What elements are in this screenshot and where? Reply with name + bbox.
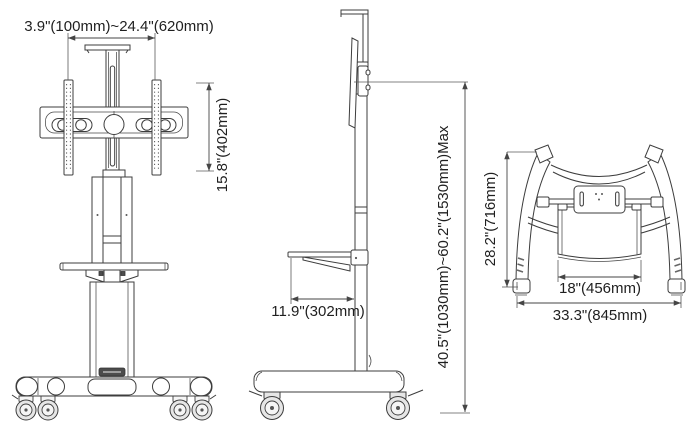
shelf-depth-label: 11.9"(302mm) bbox=[271, 303, 364, 320]
mount-crossbar bbox=[40, 107, 188, 138]
shelf-width-label: 18"(456mm) bbox=[559, 280, 641, 297]
caster bbox=[192, 395, 216, 420]
overall-height-dimension: 40.5"(1030mm)~60.2"(1530mm)Max bbox=[354, 82, 470, 413]
caster bbox=[249, 391, 284, 420]
diagram-canvas: 3.9"(100mm)~24.4"(620mm) 15.8"(402mm) bbox=[0, 0, 700, 424]
caster bbox=[387, 390, 424, 420]
base-width-dimension: 33.3"(845mm) bbox=[517, 296, 681, 324]
shelf-depth-dimension: 11.9"(302mm) bbox=[271, 258, 364, 320]
base-width-label: 33.3"(845mm) bbox=[553, 307, 648, 324]
side-pole bbox=[355, 94, 371, 373]
caster bbox=[12, 395, 36, 420]
rear-mount-plate bbox=[574, 186, 625, 213]
rear-right-leg bbox=[645, 145, 685, 295]
shelf-width-dimension: 18"(456mm) bbox=[558, 260, 641, 297]
caster bbox=[170, 396, 190, 420]
front-width-label: 3.9"(100mm)~24.4"(620mm) bbox=[24, 18, 213, 35]
caster bbox=[38, 396, 58, 420]
side-view: 11.9"(302mm) 40.5"(1030mm)~60.2"(1530mm)… bbox=[249, 10, 470, 420]
overall-height-label: 40.5"(1030mm)~60.2"(1530mm)Max bbox=[435, 125, 452, 368]
lower-column bbox=[90, 282, 134, 377]
front-casters bbox=[12, 395, 216, 420]
rear-left-leg bbox=[513, 145, 553, 295]
front-view: 3.9"(100mm)~24.4"(620mm) 15.8"(402mm) bbox=[12, 18, 231, 420]
rear-depth-label: 28.2"(716mm) bbox=[482, 172, 499, 267]
front-bracket-height-label: 15.8"(402mm) bbox=[214, 98, 231, 193]
rear-shelf bbox=[558, 207, 641, 262]
cable-clip bbox=[369, 355, 371, 367]
side-casters bbox=[249, 390, 423, 420]
rear-view: 28.2"(716mm) 18"(456mm) 33.3"(845mm) bbox=[482, 145, 685, 324]
side-base bbox=[254, 371, 404, 392]
front-height-dimension: 15.8"(402mm) bbox=[196, 83, 231, 192]
front-base bbox=[16, 377, 212, 396]
tv-cart-dimension-drawing: 3.9"(100mm)~24.4"(620mm) 15.8"(402mm) bbox=[0, 0, 700, 424]
front-shelf bbox=[60, 263, 168, 282]
upper-poles bbox=[92, 170, 132, 263]
